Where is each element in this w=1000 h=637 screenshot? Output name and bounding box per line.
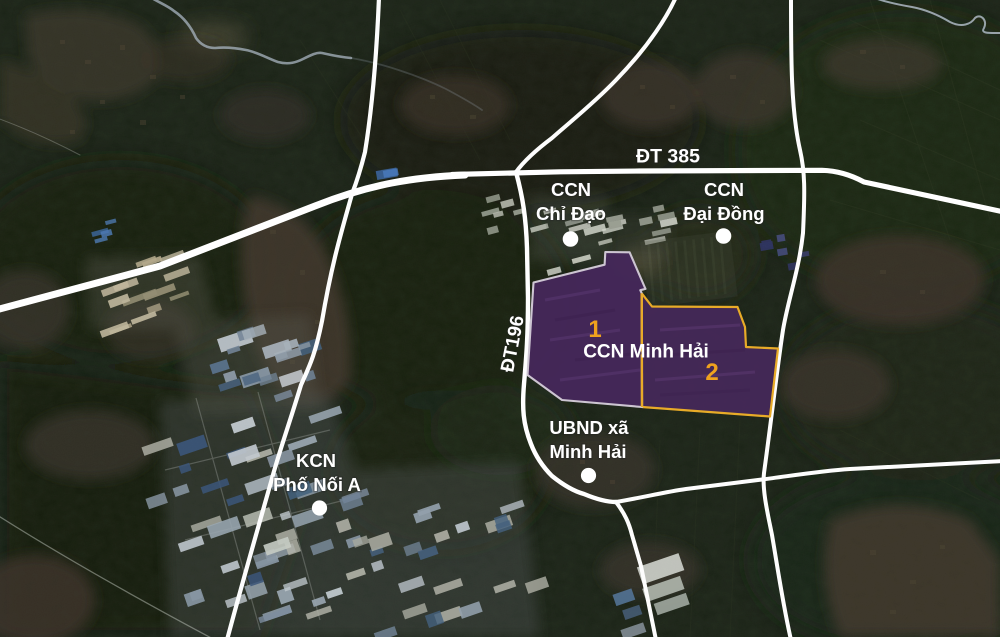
svg-text:1: 1: [588, 316, 601, 343]
svg-text:ĐT 385: ĐT 385: [636, 146, 700, 168]
svg-text:2: 2: [705, 359, 718, 386]
svg-text:KCN: KCN: [296, 450, 336, 471]
svg-text:CCN: CCN: [551, 179, 591, 200]
svg-text:UBND xã: UBND xã: [549, 417, 629, 438]
svg-text:CCN: CCN: [704, 179, 744, 200]
svg-text:Đại Đồng: Đại Đồng: [683, 203, 764, 224]
svg-text:CCN Minh Hải: CCN Minh Hải: [583, 342, 709, 363]
svg-text:Minh Hải: Minh Hải: [549, 441, 626, 462]
svg-text:Phố Nối A: Phố Nối A: [273, 474, 361, 495]
svg-text:Chỉ Đạo: Chỉ Đạo: [536, 203, 606, 224]
